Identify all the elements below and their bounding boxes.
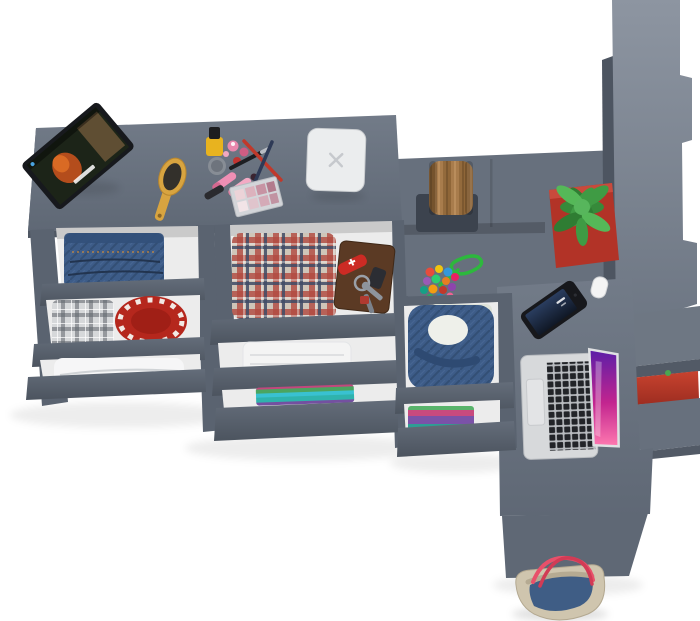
jeans-waistband — [64, 233, 164, 243]
nail-polish-small — [223, 151, 229, 157]
laptop-screen — [589, 348, 620, 447]
pompom-dot — [420, 286, 428, 294]
right-drawer-unit — [394, 293, 517, 457]
furniture-render — [0, 0, 700, 621]
floor-shadow — [10, 402, 230, 428]
pompom-dot — [423, 277, 431, 285]
stool-shade-right — [465, 161, 473, 215]
pompom-dot — [426, 268, 435, 277]
nail-polish-pink — [240, 148, 249, 157]
item-shadow — [311, 191, 365, 201]
plate-center — [131, 308, 171, 334]
pompom-dot — [429, 285, 438, 294]
nail-polish-yellow — [206, 137, 223, 156]
red-keychain — [360, 296, 369, 304]
leaf-sprig — [665, 370, 671, 376]
white-box — [306, 128, 366, 192]
laptop-trackpad — [526, 379, 545, 426]
platform-joint — [490, 159, 493, 227]
pompom-dot — [435, 265, 443, 273]
middle-chest — [210, 220, 411, 448]
fleece-lining — [428, 315, 468, 345]
stool-shade-left — [429, 161, 437, 215]
scene-svg — [0, 0, 700, 621]
colorful-clothes — [256, 384, 355, 405]
cream-jar-lid — [211, 160, 223, 172]
laptop-keyboard — [547, 361, 596, 451]
leaf-center — [574, 199, 590, 215]
computer-desk — [497, 275, 653, 578]
pompom-dot — [451, 273, 459, 281]
pompom-dot — [442, 277, 450, 285]
pompom-dot — [439, 286, 447, 294]
pompom-dot — [432, 275, 441, 284]
pompom-dot — [448, 283, 456, 291]
bottle-cap — [231, 142, 235, 146]
pompom-dot — [444, 268, 453, 277]
nail-polish-cap — [209, 127, 220, 139]
denim-jacket — [408, 304, 494, 389]
laptop — [520, 348, 621, 459]
plaid-shorts — [232, 233, 336, 319]
